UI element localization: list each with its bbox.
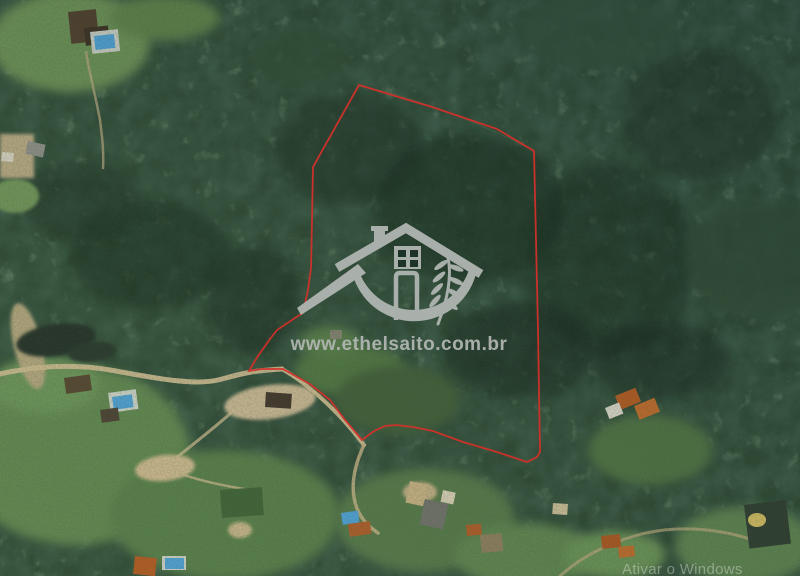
logo-window (394, 246, 421, 269)
os-activation-watermark: Ativar o Windows (622, 561, 743, 576)
satellite-canvas: www.ethelsaito.com.br Ativar o Windows (0, 0, 800, 576)
watermark-url: www.ethelsaito.com.br (290, 334, 508, 355)
logo-chimney-cap (371, 226, 388, 231)
logo-chimney (374, 229, 385, 245)
tone-vignette (0, 0, 800, 576)
property-satellite-image: www.ethelsaito.com.br Ativar o Windows (0, 0, 800, 576)
